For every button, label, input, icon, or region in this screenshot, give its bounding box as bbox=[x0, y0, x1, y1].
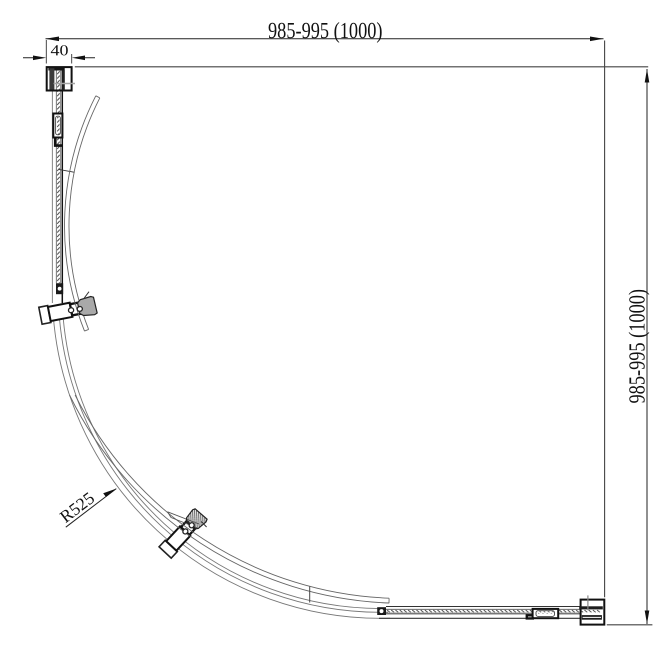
svg-text:985-995 (1000): 985-995 (1000) bbox=[625, 289, 650, 404]
svg-text:40: 40 bbox=[50, 42, 68, 59]
svg-text:985-995 (1000): 985-995 (1000) bbox=[268, 18, 383, 43]
